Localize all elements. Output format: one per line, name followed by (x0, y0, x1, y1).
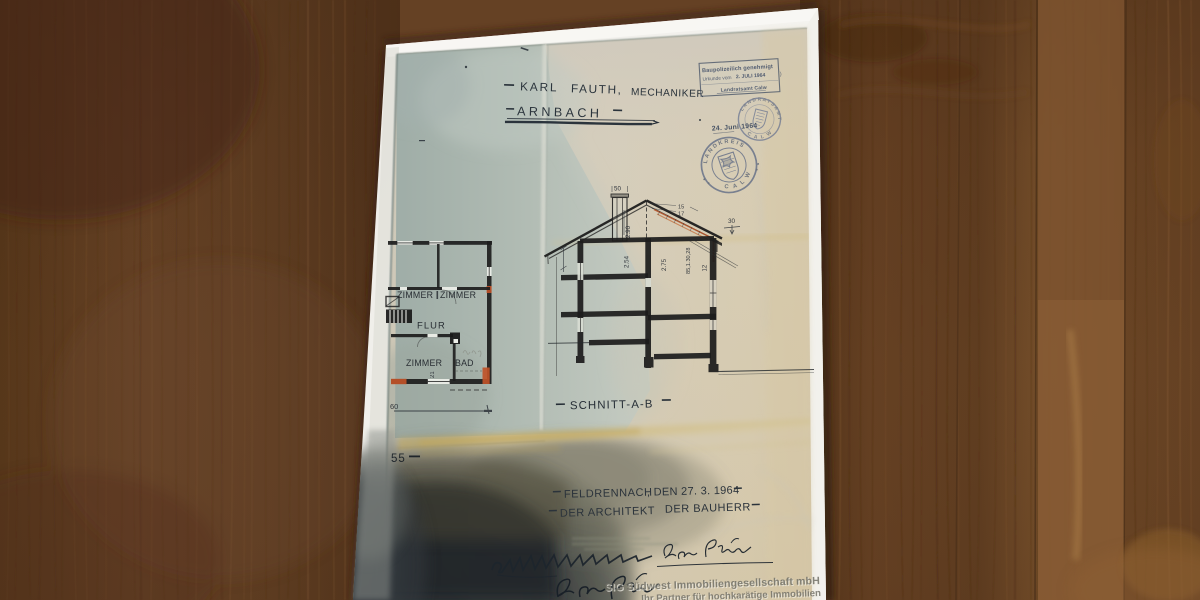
svg-text:DER BAUHERR: DER BAUHERR (665, 501, 751, 515)
svg-text:FLUR: FLUR (417, 320, 446, 331)
svg-text:2.54: 2.54 (624, 255, 631, 268)
svg-text:ZIMMER: ZIMMER (440, 290, 476, 300)
svg-text:30: 30 (728, 218, 736, 225)
svg-text:ZIMMER: ZIMMER (397, 290, 433, 300)
svg-text:85,1.30,28: 85,1.30,28 (686, 248, 692, 274)
svg-text:12: 12 (703, 264, 709, 271)
svg-text:2.75: 2.75 (661, 258, 668, 271)
svg-text:ZIMMER: ZIMMER (406, 358, 442, 368)
svg-text:FELDRENNACH: FELDRENNACH (564, 487, 653, 501)
svg-text:BAD: BAD (455, 358, 474, 368)
svg-text:60: 60 (390, 402, 398, 411)
svg-text:MECHANIKER: MECHANIKER (631, 87, 705, 100)
svg-text:21: 21 (430, 371, 436, 378)
svg-text:2.90: 2.90 (625, 225, 632, 238)
svg-text:15: 15 (678, 205, 684, 211)
svg-text:FAUTH,: FAUTH, (571, 81, 623, 96)
svg-text:50: 50 (614, 186, 621, 193)
svg-text:55: 55 (391, 453, 406, 465)
svg-text:ARNBACH: ARNBACH (517, 104, 603, 120)
svg-text:17: 17 (678, 212, 684, 218)
svg-text:, DEN 27. 3. 1964: , DEN 27. 3. 1964 (647, 484, 740, 498)
svg-text:SCHNITT-A-B: SCHNITT-A-B (570, 398, 654, 412)
svg-text:KARL: KARL (520, 79, 559, 94)
